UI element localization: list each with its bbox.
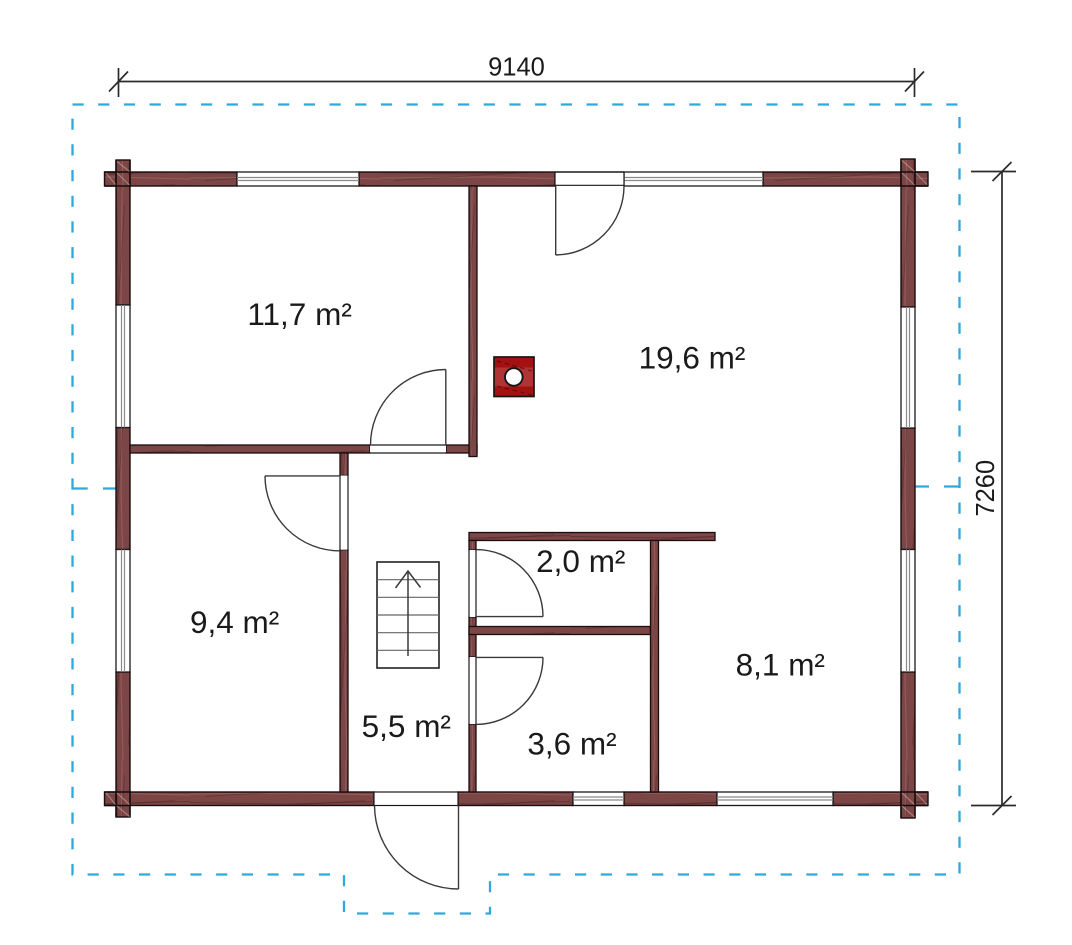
svg-text:11,7 m²: 11,7 m² [247,296,351,332]
svg-text:9,4 m²: 9,4 m² [190,604,279,640]
svg-text:5,5 m²: 5,5 m² [362,708,451,744]
svg-text:9140: 9140 [488,54,545,82]
svg-text:8,1 m²: 8,1 m² [736,647,825,683]
svg-text:19,6 m²: 19,6 m² [639,340,746,376]
svg-text:7260: 7260 [972,460,1000,517]
svg-text:3,6 m²: 3,6 m² [527,726,616,762]
svg-text:2,0 m²: 2,0 m² [536,543,625,579]
